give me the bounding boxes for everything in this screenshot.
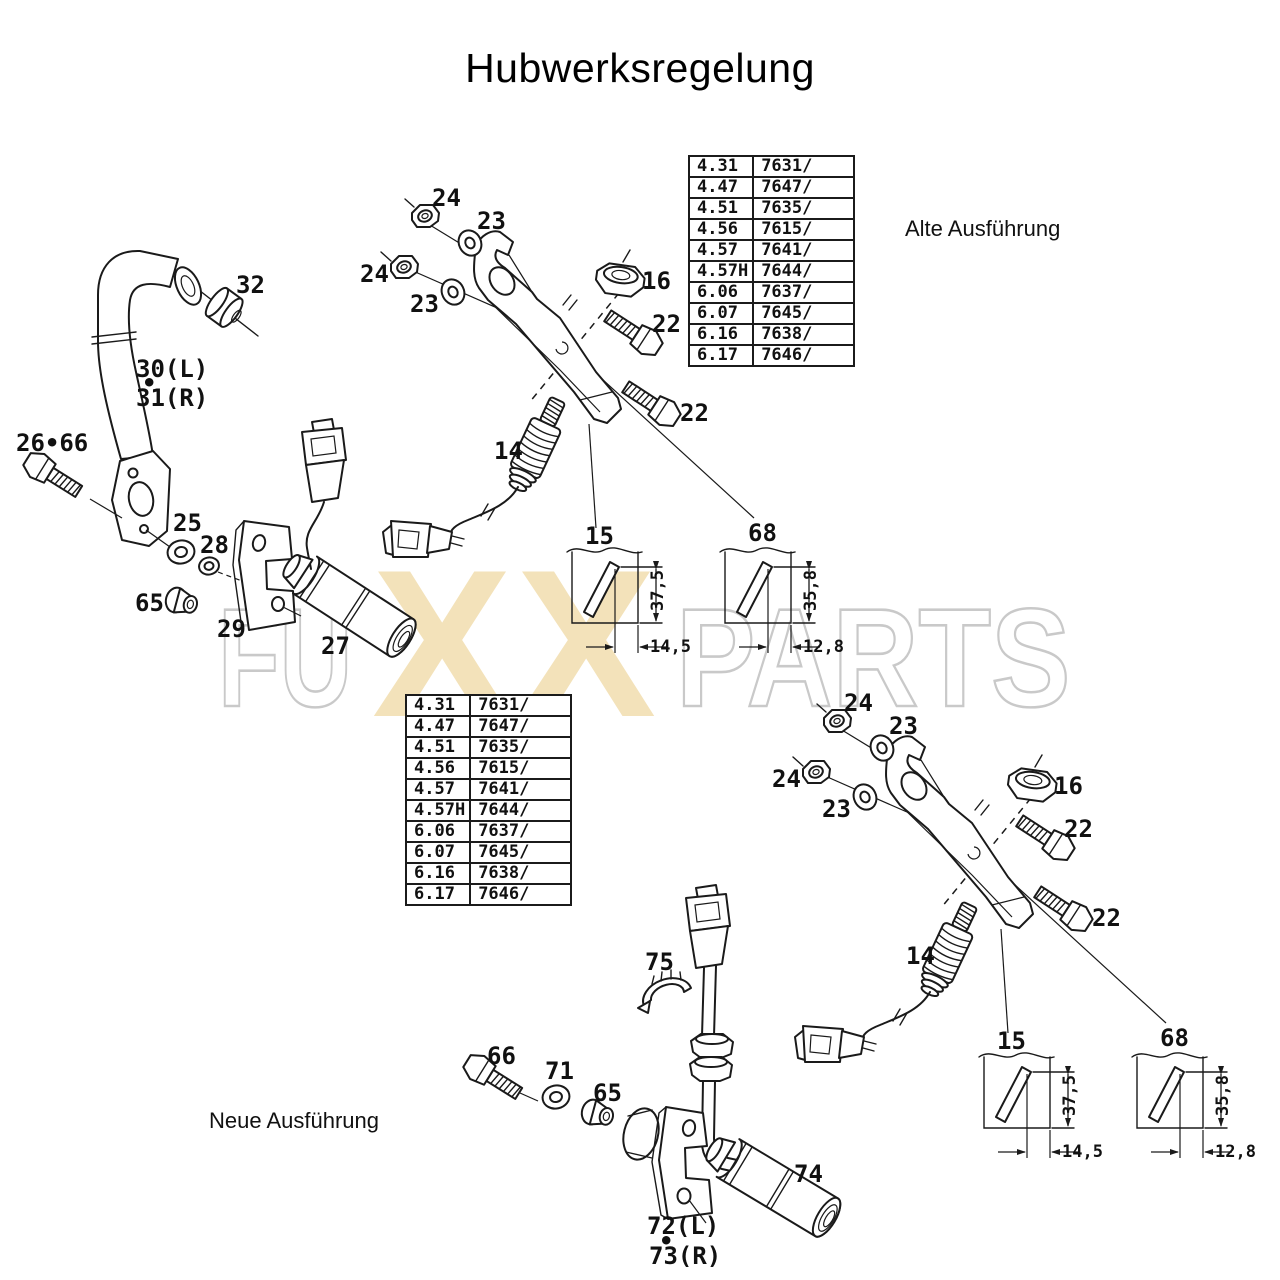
variant-cell: 6.06 — [689, 282, 753, 303]
sensor-74 — [699, 1128, 846, 1240]
bracket-72-73 — [618, 1105, 712, 1223]
connector-27 — [302, 419, 346, 569]
variant-row: 4.57H7644/ — [406, 800, 571, 821]
dim-35-8: 35,8 — [801, 570, 821, 611]
variant-cell: 4.56 — [689, 219, 753, 240]
callout-74: 74 — [794, 1160, 823, 1188]
lever-arm — [474, 231, 621, 423]
variant-cell: 4.51 — [406, 737, 470, 758]
variant-cell: 4.31 — [406, 695, 470, 716]
variant-row: 4.317631/ — [406, 695, 571, 716]
variant-cell: 6.06 — [406, 821, 470, 842]
variant-table-new: 4.317631/4.477647/4.517635/4.567615/4.57… — [405, 694, 572, 906]
variant-cell: 7645/ — [470, 842, 571, 863]
callout-72L: 72(L) — [647, 1212, 719, 1240]
variant-row: 4.477647/ — [689, 177, 854, 198]
callout-65: 65 — [135, 589, 164, 617]
variant-cell: 4.57 — [406, 779, 470, 800]
variant-cell: 7638/ — [470, 863, 571, 884]
variant-row: 4.577641/ — [406, 779, 571, 800]
callout-15: 15 — [585, 522, 614, 550]
variant-row: 6.067637/ — [689, 282, 854, 303]
variant-table-old: 4.317631/4.477647/4.517635/4.567615/4.57… — [688, 155, 855, 367]
variant-cell: 6.17 — [689, 345, 753, 366]
callout-22: 22 — [652, 310, 681, 338]
callout-22: 22 — [680, 399, 709, 427]
callout-32: 32 — [236, 271, 265, 299]
callout-28: 28 — [200, 531, 229, 559]
dim-37-5: 37,5 — [648, 570, 668, 611]
callout-25: 25 — [173, 509, 202, 537]
variant-cell: 6.16 — [406, 863, 470, 884]
variant-row: 4.567615/ — [689, 219, 854, 240]
variant-cell: 7641/ — [470, 779, 571, 800]
variant-row: 6.177646/ — [406, 884, 571, 905]
variant-row: 4.517635/ — [406, 737, 571, 758]
callout-23: 23 — [477, 207, 506, 235]
variant-cell: 7638/ — [753, 324, 854, 345]
callout-68: 68 — [748, 519, 777, 547]
callout-65: 65 — [593, 1079, 622, 1107]
callout-27: 27 — [321, 632, 350, 660]
variant-row: 6.067637/ — [406, 821, 571, 842]
bushing-25 — [165, 538, 196, 566]
tube-nut — [691, 1034, 733, 1058]
variant-cell: 7646/ — [470, 884, 571, 905]
variant-row: 4.517635/ — [689, 198, 854, 219]
variant-cell: 6.07 — [689, 303, 753, 324]
variant-cell: 4.31 — [689, 156, 753, 177]
callout-31R: 31(R) — [136, 384, 208, 412]
callout-24: 24 — [360, 260, 389, 288]
variant-cell: 4.47 — [689, 177, 753, 198]
variant-cell: 7641/ — [753, 240, 854, 261]
variant-cell: 7644/ — [470, 800, 571, 821]
callout-29: 29 — [217, 615, 246, 643]
variant-row: 4.567615/ — [406, 758, 571, 779]
variant-row: 6.077645/ — [689, 303, 854, 324]
variant-row: 6.177646/ — [689, 345, 854, 366]
variant-cell: 7645/ — [753, 303, 854, 324]
clamp-75 — [638, 970, 691, 1013]
bushing-71 — [540, 1083, 571, 1111]
control-lever-assembly-lower — [772, 689, 1256, 1162]
washer-23 — [437, 275, 468, 308]
callout-24: 24 — [432, 184, 461, 212]
parts-diagram-page: Hubwerksregelung Alte Ausführung Neue Au… — [0, 0, 1280, 1280]
variant-cell: 7646/ — [753, 345, 854, 366]
variant-row: 4.477647/ — [406, 716, 571, 737]
variant-cell: 7637/ — [753, 282, 854, 303]
variant-cell: 4.57 — [689, 240, 753, 261]
variant-cell: 7615/ — [753, 219, 854, 240]
variant-cell: 6.07 — [406, 842, 470, 863]
callout-26-66: 26•66 — [16, 429, 88, 457]
variant-cell: 7647/ — [753, 177, 854, 198]
variant-cell: 6.17 — [406, 884, 470, 905]
variant-cell: 7644/ — [753, 261, 854, 282]
connector-74 — [686, 885, 730, 1036]
variant-cell: 7637/ — [470, 821, 571, 842]
plug-65 — [163, 585, 200, 617]
variant-row: 6.167638/ — [406, 863, 571, 884]
watermark-parts: PARTS — [676, 579, 1070, 736]
callout-14: 14 — [494, 437, 523, 465]
variant-row: 4.57H7644/ — [689, 261, 854, 282]
flange-plate — [112, 451, 170, 546]
callout-23: 23 — [410, 290, 439, 318]
callout-73R: 73(R) — [649, 1242, 721, 1270]
callout-16: 16 — [642, 267, 671, 295]
variant-cell: 7647/ — [470, 716, 571, 737]
variant-row: 6.077645/ — [406, 842, 571, 863]
variant-cell: 7631/ — [753, 156, 854, 177]
nut-16 — [594, 262, 646, 298]
variant-cell: 4.57H — [406, 800, 470, 821]
callout-71: 71 — [545, 1057, 574, 1085]
variant-row: 6.167638/ — [689, 324, 854, 345]
variant-cell: 7615/ — [470, 758, 571, 779]
variant-cell: 4.57H — [689, 261, 753, 282]
tube-nut — [690, 1057, 732, 1081]
variant-cell: 7631/ — [470, 695, 571, 716]
callout-66: 66 — [487, 1042, 516, 1070]
variant-cell: 4.56 — [406, 758, 470, 779]
variant-cell: 4.51 — [689, 198, 753, 219]
variant-cell: 4.47 — [406, 716, 470, 737]
variant-row: 4.577641/ — [689, 240, 854, 261]
nut-24 — [391, 256, 418, 278]
variant-row: 4.317631/ — [689, 156, 854, 177]
dim-12-8: 12,8 — [803, 637, 844, 657]
exploded-diagram: FU X X PARTS — [0, 0, 1280, 1280]
dim-14-5: 14,5 — [650, 637, 691, 657]
variant-cell: 7635/ — [470, 737, 571, 758]
callout-75: 75 — [645, 948, 674, 976]
variant-cell: 7635/ — [753, 198, 854, 219]
variant-cell: 6.16 — [689, 324, 753, 345]
